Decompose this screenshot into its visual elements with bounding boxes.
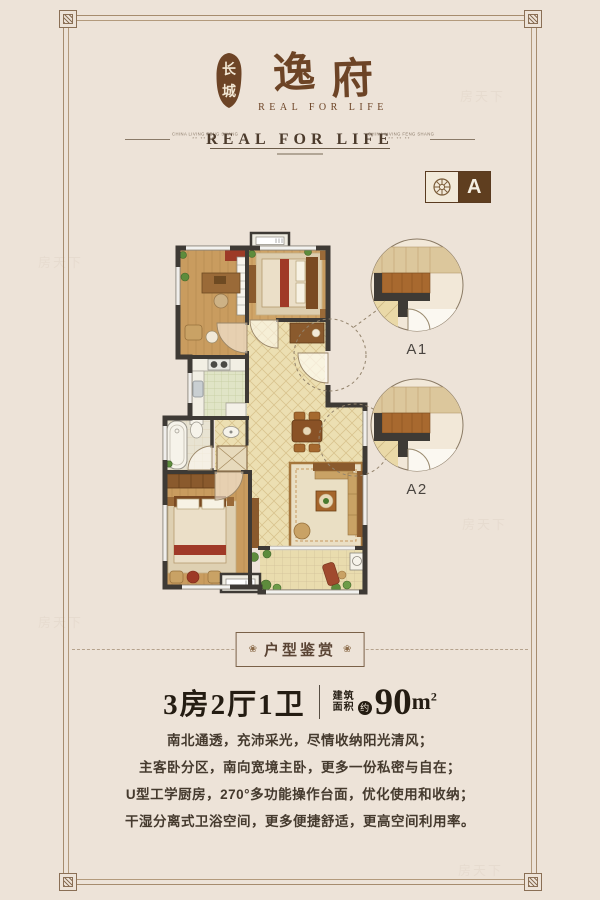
brand-char-1: 逸 [272,51,316,97]
bedroom2-furniture [249,249,329,319]
section-banner: ❀ 户型鉴赏 ❀ [236,632,365,667]
band-smudge [277,153,323,155]
description-line: 南北通透，充沛采光，尽情收纳阳光清风； [0,727,600,754]
unit-summary: 3房2厅1卫 建筑 面积 约 90 m2 [0,681,600,723]
description-line: U型工学厨房，270°多功能操作台面，优化使用和收纳； [0,781,600,808]
area-value: 90 [375,684,412,721]
band-title: REAL FOR LIFE [206,131,394,149]
detail-label-a2: A2 [406,481,427,498]
seal-char-2: 城 [222,83,236,99]
rosette-icon: ❀ [249,645,257,655]
detail-circle-a1: A1 [371,239,466,358]
entry-cabinet [290,323,324,343]
rosette-icon [426,172,459,202]
floor-plan: A1 A2 [130,213,480,618]
approx-badge: 约 [358,701,372,715]
unit-type-badge: A [425,171,491,203]
band-rule-right [430,139,475,140]
description-line: 主客卧分区，南向宽境主卧，更多一份私密与自在； [0,754,600,781]
unit-area: 建筑 面积 约 90 m2 [333,684,437,721]
summary-divider [319,685,320,719]
unit-type-label: A [459,172,491,202]
brand-char-2: 府 [330,57,374,102]
unit-description: 南北通透，充沛采光，尽情收纳阳光清风； 主客卧分区，南向宽境主卧，更多一份私密与… [0,727,600,835]
unit-layout: 3房2厅1卫 [163,681,306,723]
corner-ornament-icon [524,873,542,891]
brand-name: 逸 府 [273,52,373,96]
band-underline [210,148,390,149]
brand-logo: 长 城 逸 府 REAL FOR LIFE [0,52,600,113]
section-banner-title: 户型鉴赏 [264,639,336,660]
detail-label-a1: A1 [406,341,427,358]
brand-seal-icon: 长 城 [212,52,246,110]
detail-circle-a2: A2 [371,379,466,498]
header-band: CHINA LIVING FENG SHANG ** ** ** CHINA L… [0,131,600,159]
corner-ornament-icon [59,10,77,28]
band-rule-left [125,139,170,140]
corner-ornament-icon [59,873,77,891]
corner-ornament-icon [524,10,542,28]
description-line: 干湿分离式卫浴空间，更多便捷舒适，更高空间利用率。 [0,808,600,835]
seal-char-1: 长 [222,61,237,77]
area-unit: m2 [412,689,437,715]
rosette-icon: ❀ [343,645,351,655]
area-label: 建筑 面积 [333,691,355,713]
brand-tagline: REAL FOR LIFE [258,102,388,113]
